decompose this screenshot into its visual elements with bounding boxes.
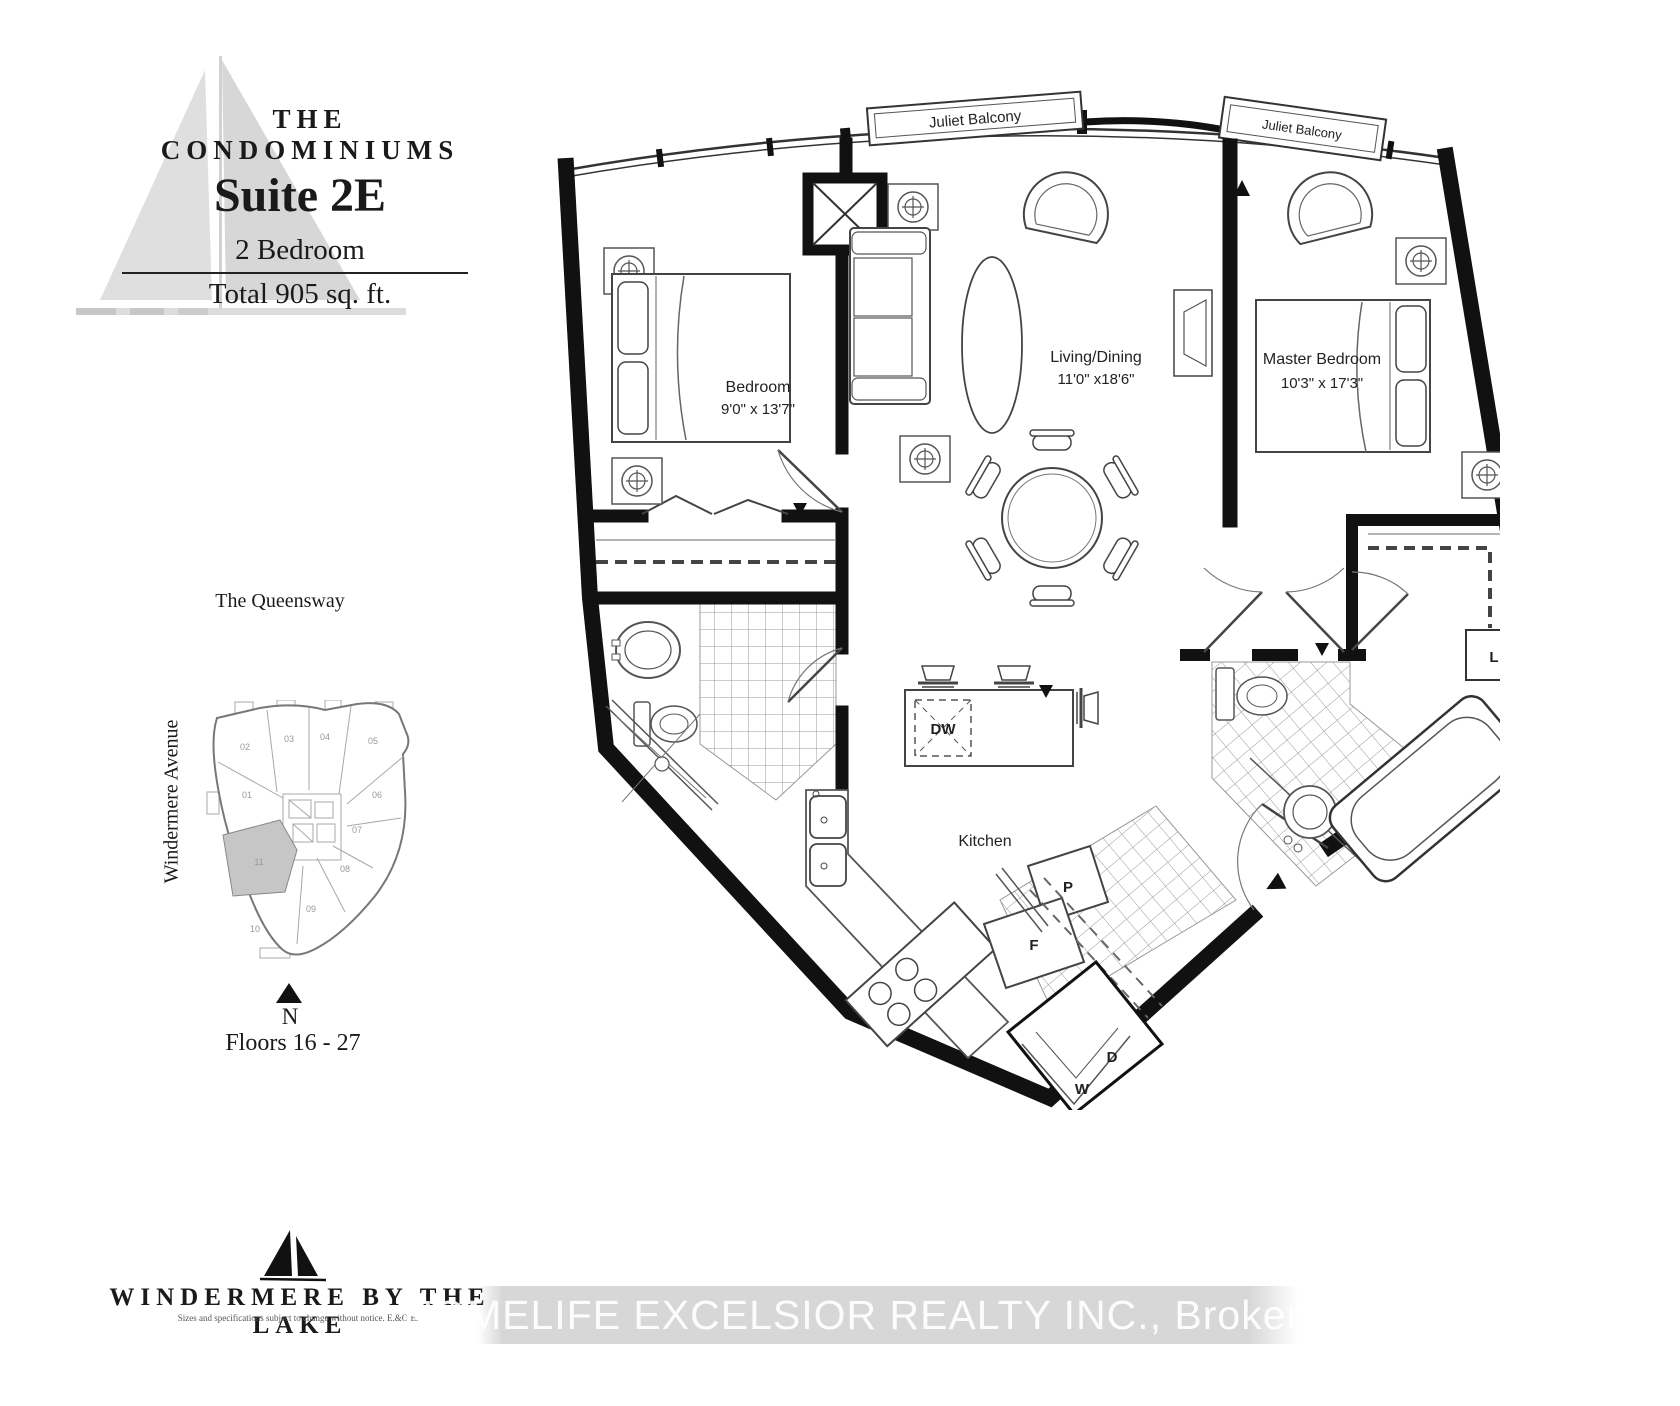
master-dims: 10'3" x 17'3" — [1281, 375, 1363, 392]
suite-bedrooms: 2 Bedroom — [120, 234, 480, 267]
svg-text:06: 06 — [372, 790, 382, 800]
floorplan-page: THE CONDOMINIUMS Suite 2E 2 Bedroom Tota… — [0, 0, 1680, 1406]
brokerage-watermark-text: HOMELIFE EXCELSIOR REALTY INC., Brokerag… — [403, 1292, 1372, 1339]
header-divider — [122, 272, 468, 274]
master-closet — [1368, 534, 1500, 680]
svg-text:05: 05 — [368, 736, 378, 746]
keyplan: 02 03 04 05 01 06 07 08 09 10 11 — [205, 700, 415, 960]
svg-text:04: 04 — [320, 732, 330, 742]
footer-sailboat-icon — [260, 1224, 330, 1284]
living-furniture — [850, 165, 1212, 606]
street-label-windermere: Windermere Avenue — [161, 692, 184, 912]
suite-title: Suite 2E — [120, 168, 480, 223]
svg-text:03: 03 — [284, 734, 294, 744]
svg-text:07: 07 — [352, 825, 362, 835]
bedroom-closet — [596, 540, 836, 562]
floor-plan: Juliet Balcony Juliet Balcony — [540, 80, 1500, 1110]
brand-title: THE CONDOMINIUMS — [120, 104, 500, 166]
pantry-label: P — [1063, 879, 1073, 896]
living-dims: 11'0" x18'6" — [1058, 371, 1135, 388]
bedroom-dims: 9'0" x 13'7" — [721, 401, 795, 418]
dryer-label: D — [1107, 1049, 1118, 1066]
juliet-balcony-1: Juliet Balcony — [867, 92, 1083, 146]
linen-label: L — [1489, 649, 1498, 666]
bedroom-label: Bedroom — [726, 379, 791, 396]
north-arrow-icon — [276, 983, 302, 1003]
street-label-queensway: The Queensway — [160, 590, 400, 613]
living-label: Living/Dining — [1050, 349, 1142, 366]
floors-label: Floors 16 - 27 — [213, 1030, 373, 1057]
svg-text:10: 10 — [250, 924, 260, 934]
fridge-label: F — [1029, 937, 1038, 954]
suite-area: Total 905 sq. ft. — [120, 278, 480, 311]
bedroom-furniture — [604, 248, 790, 504]
svg-text:02: 02 — [240, 742, 250, 752]
kitchen-label: Kitchen — [958, 833, 1011, 850]
brokerage-watermark: HOMELIFE EXCELSIOR REALTY INC., Brokerag… — [478, 1286, 1298, 1344]
bathroom1-tile-floor — [700, 604, 836, 800]
master-label: Master Bedroom — [1263, 351, 1381, 368]
washer-label: W — [1075, 1081, 1090, 1098]
north-label: N — [262, 1004, 318, 1030]
svg-text:01: 01 — [242, 790, 252, 800]
svg-text:08: 08 — [340, 864, 350, 874]
svg-text:09: 09 — [306, 904, 316, 914]
dw-label: DW — [931, 721, 957, 738]
svg-text:11: 11 — [254, 857, 263, 867]
juliet-balcony-2: Juliet Balcony — [1219, 97, 1386, 160]
